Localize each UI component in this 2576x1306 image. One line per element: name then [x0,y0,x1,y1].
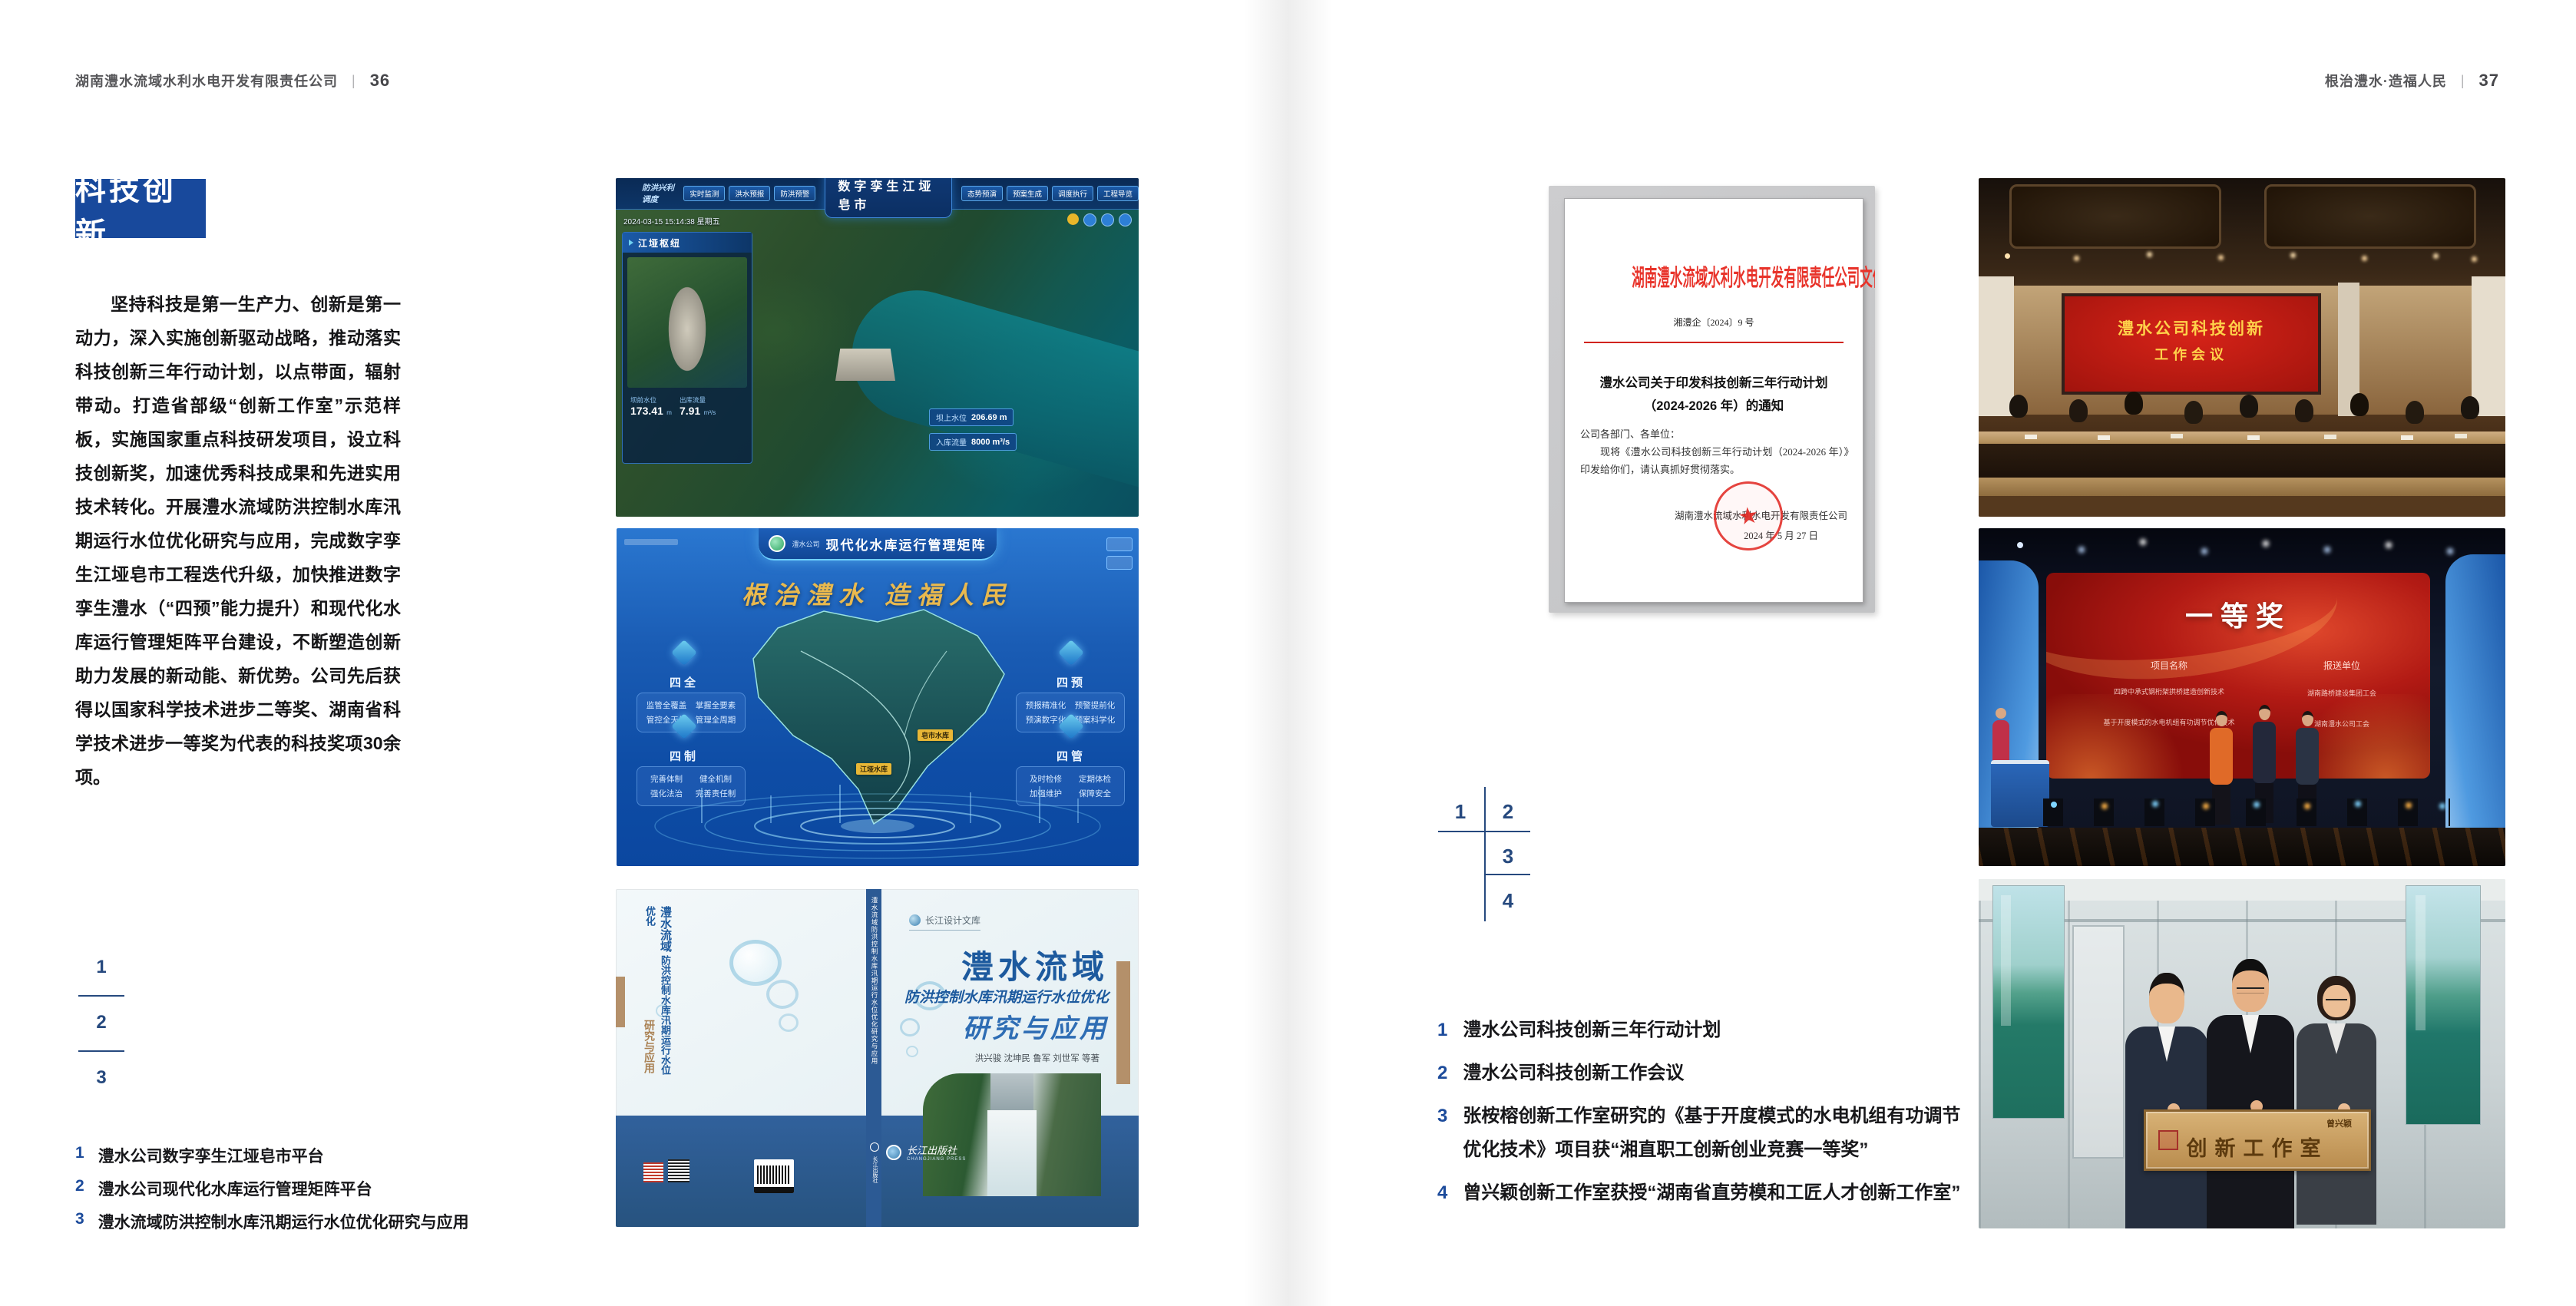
figure-index-line [78,995,124,997]
banner-text-column [2416,895,2426,1030]
dashboard-title-plate: 数字孪生江垭皂市 [825,178,952,218]
matrix-item: 监管全覆盖 [645,699,688,711]
page-number-left: 36 [370,71,390,91]
book-authors: 洪兴骏 沈坤民 鲁军 刘世军 等著 [908,1052,1100,1064]
header-divider: | [2461,73,2465,89]
conference-table [1979,431,2505,444]
seal-star-icon: ★ [1736,501,1761,531]
right-page-header: 根治澧水·造福人民 | 37 [2325,71,2499,91]
matrix-corner-label: 四预 [1040,674,1102,690]
caption-row: 1 澧水公司科技创新三年行动计划 [1437,1013,1975,1047]
award-plaque: 曾兴颖 创新工作室 [2144,1109,2371,1171]
locate-icon[interactable] [1067,213,1079,225]
index-h-line [1438,831,1530,832]
index-vertical-line [1484,787,1486,921]
data-callout: 入库流量 8000 m³/s [929,433,1017,451]
document-title-line2: （2024-2026 年）的通知 [1565,395,1863,414]
callout-label: 坝上水位 [936,412,967,423]
banner-text-column [2001,895,2011,1026]
company-name: 湖南澧水流域水利水电开发有限责任公司 [75,71,338,91]
wall-pillar [2338,283,2359,416]
document-signer: 湖南澧水流域水利水电开发有限责任公司 [1565,508,1847,522]
panel-title: 江垭枢纽 [638,236,681,250]
dashboard-tab[interactable]: 实时监测 [683,186,725,201]
figure-index-line [78,1050,124,1052]
body-paragraph: 坚持科技是第一生产力、创新是第一动力，深入实施创新驱动战略，推动落实科技创新三年… [75,287,401,794]
figure-matrix-platform: 澧水公司 现代化水库运行管理矩阵 根治澧水 造福人民 皂市水库 江垭水库 四全 … [617,528,1139,866]
figure-index-3: 3 [78,1067,124,1089]
publisher-logo-icon [886,1145,901,1160]
stage-side-panel-right [2445,554,2505,866]
person-hair [2317,976,2356,1020]
stat-label: 出库流量 [680,395,716,405]
figure-index-grid: 1 2 3 4 [1436,783,1536,925]
caption-number: 3 [75,1210,84,1228]
panel-stats: 坝前水位 173.41 m 出库流量 7.91 m³/s [623,392,752,422]
figure-index-2: 2 [1494,800,1522,824]
awardee-head [2259,705,2270,720]
scenic-banner-left [1992,885,2065,1119]
series-logo-row: 长江设计文库 [909,914,980,931]
dam-spillway [987,1110,1037,1196]
figure-digital-twin-dashboard: 防洪兴利调度 实时监测 洪水预报 防洪预警 数字孪生江垭皂市 态势预演 预案生成… [616,178,1139,517]
photo-award-ceremony: 一等奖 项目名称 报送单位 四跨中承式钢桁架拱桥建造创新技术 基于开度模式的水电… [1979,528,2505,866]
ceiling-panel [2264,184,2476,249]
bubble-graphic [729,940,782,986]
two-page-spread: 湖南澧水流域水利水电开发有限责任公司 | 36 科技创新 坚持科技是第一生产力、… [0,0,2576,1306]
caption-number: 4 [1437,1176,1447,1210]
shirt-collar [2327,1023,2346,1054]
document-body: 现将《澧水公司科技创新三年行动计划（2024-2026 年）》印发给你们，请认真… [1580,443,1849,478]
holographic-ripples [647,782,1108,862]
awardee-head [2302,711,2313,726]
shirt-collar [2158,1027,2175,1062]
dashboard-toolbar-icons[interactable] [1067,213,1132,226]
scenic-banner-right [2406,885,2481,1125]
table-papers [2025,435,2037,439]
spine-title: 澧水流域防洪控制水库汛期运行水位优化研究与应用 [870,897,879,1127]
figure-index-3: 3 [1494,845,1522,868]
page-gutter [1244,0,1332,1306]
table-front-panel [1979,496,2505,517]
matrix-item: 掌握全要素 [694,699,737,711]
document-title-line1: 澧水公司关于印发科技创新三年行动计划 [1565,372,1863,391]
settings-icon[interactable] [1119,213,1132,226]
document-red-rule [1584,342,1844,343]
awardee-body [2296,728,2319,785]
dashboard-timestamp: 2024-03-15 15:14:38 星期五 [623,215,720,226]
ceiling-lights [2005,253,2010,259]
matrix-timestamp-bar [624,539,678,545]
back-title-main: 澧水流域 [659,906,672,952]
back-title-tail: 研究与应用 [643,1020,656,1073]
callout-value: 206.69 m [971,413,1007,422]
caption-row: 1 澧水公司数字孪生江垭皂市平台 [75,1144,551,1167]
panel-dam-photo [627,257,747,388]
data-callout: 坝上水位 206.69 m [929,408,1014,426]
dashboard-left-group-label: 防洪兴利调度 [642,182,680,205]
figure-index-1: 1 [78,957,124,978]
dam-structure [835,349,895,381]
screen-title-line2: 工作会议 [2065,344,2318,364]
glasses-icon [2237,987,2264,994]
barcode-stripes [757,1165,791,1184]
matrix-title: 现代化水库运行管理矩阵 [826,534,987,554]
dashboard-tab[interactable]: 防洪预警 [774,186,815,201]
stage-light-fixtures [2043,798,2450,826]
dashboard-tab[interactable]: 态势预演 [961,186,1003,201]
second-row-attendees [1979,444,2505,478]
caption-row: 2 澧水公司现代化水库运行管理矩阵平台 [75,1177,551,1200]
meeting-attendees [2009,395,2028,418]
left-page-header: 湖南澧水流域水利水电开发有限责任公司 | 36 [75,71,390,91]
index-h-line [1484,874,1530,875]
river-water [836,275,1139,517]
plaque-seal-mark [2158,1130,2178,1150]
person-head [2149,973,2184,1023]
layers-icon[interactable] [1083,213,1096,226]
back-cover-accent-bar [616,977,625,1027]
glass-door-frame [2072,925,2125,1159]
dashboard-side-panel: 江垭枢纽 坝前水位 173.41 m 出库流量 7.91 m³/s [622,232,752,464]
fullscreen-button[interactable] [1106,537,1133,551]
official-seal: ★ [1709,477,1787,555]
menu-button[interactable] [1106,556,1133,570]
stat-block: 出库流量 7.91 m³/s [680,395,716,418]
header-divider: | [352,73,356,89]
figure-index-2: 2 [78,1012,124,1033]
front-table [1979,478,2505,496]
cover-dam-photo [923,1073,1101,1196]
figure-book-cover: 澧水流域 防洪控制水库汛期运行水位优化 研究与应用 澧水流域防洪控制水库汛期运行… [616,889,1139,1227]
caption-row: 2 澧水公司科技创新工作会议 [1437,1056,1975,1090]
isbn-barcode [754,1159,794,1193]
barcode-footer [754,1187,794,1193]
document-number: 湘澧企〔2024〕9 号 [1565,316,1863,329]
awardee-head [2216,711,2227,726]
bubble-graphic [766,980,799,1009]
matrix-item: 预报精准化 [1024,699,1067,711]
podium [1991,760,2049,827]
panel-header: 江垭枢纽 [623,233,752,253]
matrix-corner-label: 四管 [1040,748,1102,764]
book-title-main: 澧水流域 [908,941,1109,988]
caption-text: 澧水公司现代化水库运行管理矩阵平台 [98,1177,372,1200]
award-col-unit: 报送单位 [2277,659,2407,672]
publisher-logo-row: 长江出版社 CHANGJIANG PRESS [886,1142,966,1162]
wall-pillar [1979,276,2014,416]
publisher-name: 长江出版社 [907,1142,966,1157]
award-col-project: 项目名称 [2092,659,2246,672]
book-title-tail: 研究与应用 [908,1007,1109,1045]
section-badge: 科技创新 [75,179,206,238]
matrix-brand: 澧水公司 [792,539,819,549]
dashboard-tab[interactable]: 洪水预报 [729,186,770,201]
qr-code-dark [668,1159,689,1182]
nav-arrow-icon [629,240,633,246]
caption-text: 澧水公司科技创新三年行动计划 [1463,1013,1721,1047]
matrix-item: 预警提前化 [1073,699,1116,711]
document-salutation: 公司各部门、各单位： [1580,426,1680,441]
shirt-collar [2242,1015,2259,1053]
dashboard-tab[interactable]: 预案生成 [1007,186,1048,201]
caption-number: 3 [1437,1099,1447,1133]
document-paper: 湖南澧水流域水利水电开发有限责任公司文件 湘澧企〔2024〕9 号 澧水公司关于… [1564,198,1863,603]
stage-light-glows [2051,802,2057,808]
publisher-name-en: CHANGJIANG PRESS [907,1157,966,1162]
stage-floor [1979,828,2505,866]
plaque-owner: 曾兴颖 [2326,1117,2352,1129]
caption-number: 1 [75,1144,84,1162]
qr-code-red [643,1162,663,1182]
stat-label: 坝前水位 [630,395,672,405]
callout-label: 入库流量 [936,436,967,448]
wall-pillar [2472,276,2505,416]
back-cover-title: 澧水流域 防洪控制水库汛期运行水位优化 研究与应用 [642,906,673,1083]
caption-text: 澧水流域防洪控制水库汛期运行水位优化研究与应用 [98,1210,469,1233]
stat-unit: m³/s [704,409,716,416]
slogan-text: 根治澧水·造福人民 [2325,71,2447,91]
figure-official-document: 湖南澧水流域水利水电开发有限责任公司文件 湘澧企〔2024〕9 号 澧水公司关于… [1549,186,1875,613]
matrix-header-plate: 澧水公司 现代化水库运行管理矩阵 [759,528,997,560]
host-head [1996,708,2006,719]
meeting-led-screen: 澧水公司科技创新 工作会议 [2062,293,2321,395]
matrix-icon-forecast [1058,640,1084,666]
figure-index-1: 1 [1447,800,1474,824]
awardee-body [2253,722,2276,783]
dashboard-tab[interactable]: 调度执行 [1052,186,1093,201]
matrix-corner-label: 四全 [653,674,715,690]
awardee-body [2210,728,2233,785]
series-logo-icon [909,914,921,926]
bubble-graphic [779,1013,799,1032]
plaque-title: 创新工作室 [2146,1132,2369,1162]
front-cover-accent-bar [1116,961,1130,1084]
map-label-reservoir: 江垭水库 [856,763,891,775]
matrix-icon-all [671,640,697,666]
award-title: 一等奖 [2046,594,2430,634]
caption-text: 张桉榕创新工作室研究的《基于开度模式的水电机组有功调节优化技术》项目获“湘直职工… [1463,1099,1969,1167]
map-label-reservoir: 皂市水库 [918,729,953,741]
matrix-item: 管理全周期 [694,714,737,726]
caption-text: 澧水公司数字孪生江垭皂市平台 [98,1144,324,1167]
caption-number: 1 [1437,1013,1447,1047]
book-spine: 澧水流域防洪控制水库汛期运行水位优化研究与应用 长江出版社 [866,889,881,1227]
callout-value: 8000 m³/s [971,438,1010,447]
caption-number: 2 [1437,1056,1447,1090]
ceiling-panel [2009,184,2221,249]
award-project-name: 基于开度模式的水电机组有功调节优化技术 [2069,717,2269,727]
spine-publisher: 长江出版社 [871,1156,878,1218]
caption-text: 澧水公司科技创新工作会议 [1463,1056,1684,1090]
caption-row: 4 曾兴颖创新工作室获授“湖南省直劳模和工匠人才创新工作室” [1437,1176,1975,1210]
stat-unit: m [666,409,672,416]
award-led-screen: 一等奖 项目名称 报送单位 四跨中承式钢桁架拱桥建造创新技术 基于开度模式的水电… [2046,573,2430,779]
award-unit-name: 湖南路桥建设集团工会 [2277,688,2407,698]
book-title-sub: 防洪控制水库汛期运行水位优化 [886,986,1109,1007]
person-left-man [2125,973,2209,1228]
matrix-corner-label: 四制 [653,748,715,764]
award-project-name: 四跨中承式钢桁架拱桥建造创新技术 [2069,686,2269,696]
glasses-icon [2326,999,2347,1003]
caption-row: 3 张桉榕创新工作室研究的《基于开度模式的水电机组有功调节优化技术》项目获“湘直… [1437,1099,1969,1167]
dashboard-header-bar: 防洪兴利调度 实时监测 洪水预报 防洪预警 数字孪生江垭皂市 态势预演 预案生成… [616,178,1139,210]
company-logo-icon [769,535,785,552]
stat-value: 173.41 [630,405,663,417]
caption-text: 曾兴颖创新工作室获授“湖南省直劳模和工匠人才创新工作室” [1463,1176,1960,1210]
stat-block: 坝前水位 173.41 m [630,395,672,418]
stage-truss-lights [2017,542,2023,548]
spine-publisher-logo [870,1142,879,1152]
document-red-header: 湖南澧水流域水利水电开发有限责任公司文件 [1632,259,1795,293]
compass-icon[interactable] [1101,213,1114,226]
series-name: 长江设计文库 [925,914,980,927]
dashboard-tab[interactable]: 工程导览 [1097,186,1139,201]
person-center-man [2206,959,2295,1228]
person-right-woman [2295,976,2378,1228]
page-number-right: 37 [2479,71,2499,91]
photo-plaque-group: 曾兴颖 创新工作室 [1979,879,2505,1228]
screen-title-line1: 澧水公司科技创新 [2065,316,2318,339]
caption-row: 3 澧水流域防洪控制水库汛期运行水位优化研究与应用 [75,1210,551,1233]
photo-meeting-room: 澧水公司科技创新 工作会议 [1979,178,2505,517]
stat-value: 7.91 [680,405,700,417]
document-date: 2024 年 5 月 27 日 [1565,527,1818,542]
screen-glow-left [2046,694,2192,779]
person-head [2232,959,2269,1012]
dam-crest [990,1073,1033,1115]
caption-number: 2 [75,1177,84,1195]
figure-index-4: 4 [1494,889,1522,913]
